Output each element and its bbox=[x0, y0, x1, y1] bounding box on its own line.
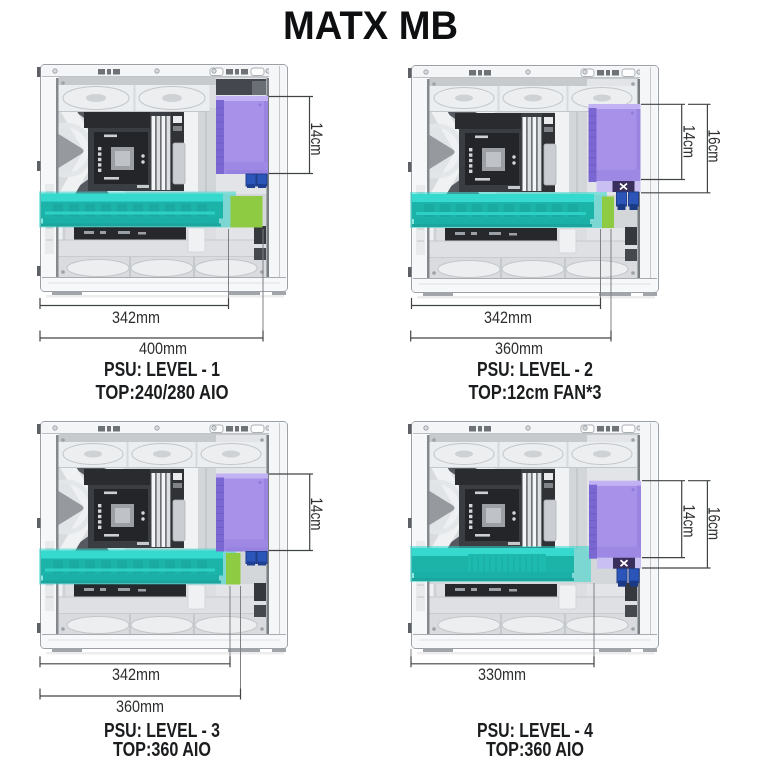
svg-text:342mm: 342mm bbox=[484, 308, 532, 327]
svg-text:14cm: 14cm bbox=[307, 498, 326, 531]
svg-text:16cm: 16cm bbox=[705, 507, 724, 540]
svg-text:330mm: 330mm bbox=[478, 665, 526, 684]
svg-text:TOP:360 AIO: TOP:360 AIO bbox=[486, 739, 584, 760]
svg-text:14cm: 14cm bbox=[680, 505, 699, 538]
svg-text:TOP:240/280 AIO: TOP:240/280 AIO bbox=[96, 382, 229, 404]
svg-text:14cm: 14cm bbox=[680, 125, 699, 158]
svg-text:400mm: 400mm bbox=[139, 339, 187, 358]
svg-text:360mm: 360mm bbox=[116, 697, 164, 716]
svg-text:342mm: 342mm bbox=[112, 665, 160, 684]
svg-text:PSU: LEVEL - 1: PSU: LEVEL - 1 bbox=[104, 359, 220, 381]
svg-text:360mm: 360mm bbox=[495, 339, 543, 358]
svg-text:MATX MB: MATX MB bbox=[283, 4, 458, 48]
svg-text:14cm: 14cm bbox=[307, 123, 326, 156]
svg-text:342mm: 342mm bbox=[112, 308, 160, 327]
svg-text:TOP:12cm FAN*3: TOP:12cm FAN*3 bbox=[469, 382, 602, 404]
svg-text:PSU: LEVEL - 2: PSU: LEVEL - 2 bbox=[477, 359, 593, 381]
svg-text:16cm: 16cm bbox=[705, 130, 724, 163]
svg-text:TOP:360 AIO: TOP:360 AIO bbox=[113, 739, 211, 760]
